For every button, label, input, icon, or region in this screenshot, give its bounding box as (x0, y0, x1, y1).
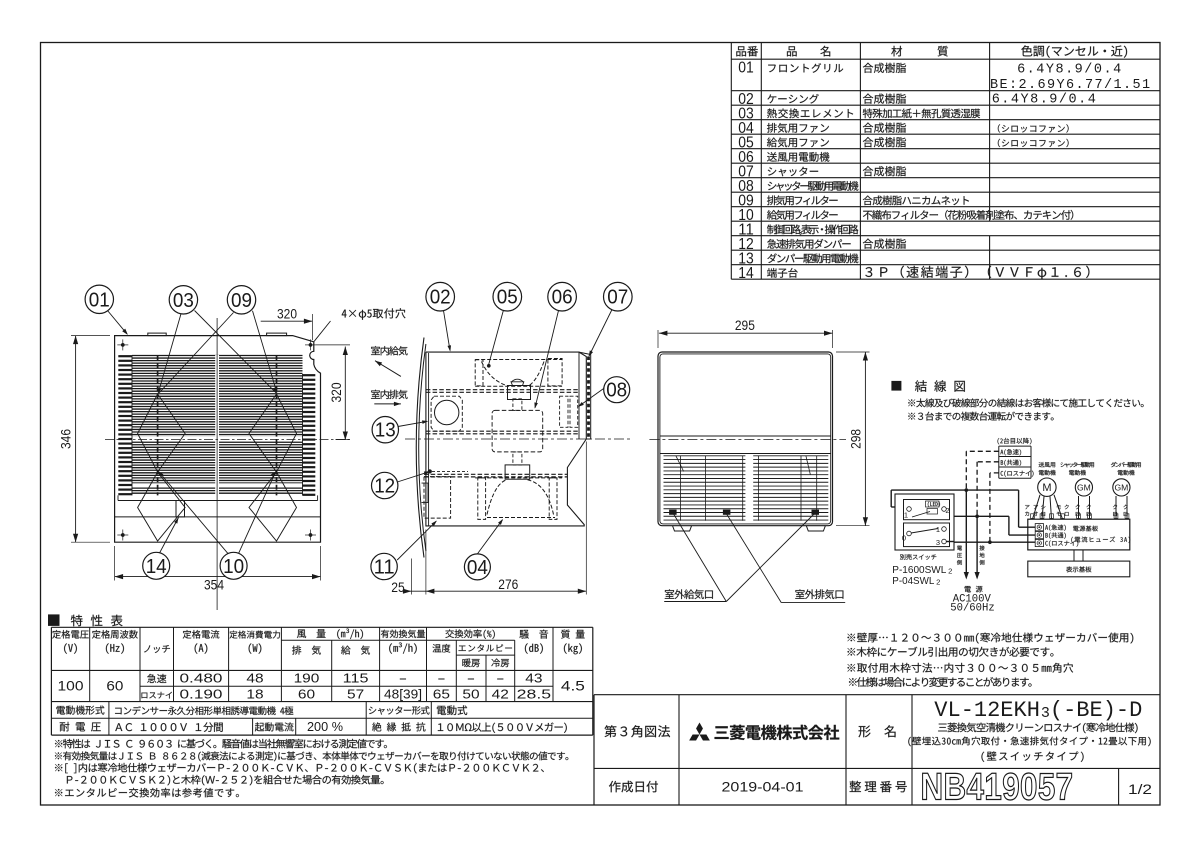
svg-text:GM: GM (1114, 482, 1128, 492)
svg-text:NB419057: NB419057 (921, 767, 1074, 809)
svg-text:115: 115 (343, 671, 369, 686)
svg-text:GM: GM (1077, 482, 1091, 492)
svg-text:100: 100 (58, 679, 84, 694)
svg-text:-: - (467, 671, 476, 686)
svg-text:18: 18 (246, 686, 263, 701)
svg-text:0: 0 (902, 534, 906, 543)
svg-text:298: 298 (848, 429, 863, 449)
svg-text:(-BE)-D: (-BE)-D (1050, 698, 1142, 723)
svg-text:190: 190 (294, 671, 320, 686)
svg-text:295: 295 (735, 318, 755, 333)
svg-text:10: 10 (223, 556, 244, 578)
svg-text:M: M (1042, 482, 1051, 494)
svg-text:0.190: 0.190 (180, 686, 223, 701)
svg-text:6.4Y8.9/0.4: 6.4Y8.9/0.4 (1017, 63, 1123, 78)
svg-text:06: 06 (552, 287, 573, 309)
svg-text:2019-04-01: 2019-04-01 (722, 779, 804, 794)
svg-text:13: 13 (375, 420, 396, 442)
svg-text:42: 42 (492, 686, 509, 701)
svg-text:346: 346 (59, 429, 74, 449)
svg-text:6.4Y8.9/0.4: 6.4Y8.9/0.4 (992, 93, 1098, 108)
svg-text:-: - (437, 671, 446, 686)
svg-text:07: 07 (607, 287, 628, 309)
svg-text:276: 276 (498, 577, 518, 592)
svg-text:P-04SWL: P-04SWL (892, 575, 934, 587)
svg-text:50/60Hz: 50/60Hz (950, 603, 995, 615)
svg-text:01: 01 (89, 289, 110, 311)
svg-text:50: 50 (462, 686, 479, 701)
svg-text:03: 03 (173, 290, 194, 312)
svg-text:2: 2 (948, 569, 953, 577)
svg-text:2: 2 (936, 580, 941, 588)
svg-text:04: 04 (467, 557, 488, 579)
svg-text:-: - (399, 671, 408, 686)
svg-text:4.5: 4.5 (561, 679, 585, 694)
svg-text:57: 57 (347, 686, 364, 701)
svg-text:BE:2.69Y6.77/1.51: BE:2.69Y6.77/1.51 (990, 78, 1152, 93)
svg-text:08: 08 (606, 380, 627, 402)
svg-text:60: 60 (106, 679, 123, 694)
svg-text:02: 02 (430, 287, 451, 309)
svg-text:0.480: 0.480 (180, 671, 223, 686)
svg-text:43: 43 (525, 671, 542, 686)
svg-text:25: 25 (391, 580, 405, 595)
svg-text:28.5: 28.5 (517, 686, 551, 701)
svg-text:320: 320 (277, 306, 297, 321)
svg-text:354: 354 (204, 578, 224, 593)
svg-text:01: 01 (738, 60, 754, 77)
svg-text:2: 2 (945, 506, 949, 515)
svg-text:200 %: 200 % (307, 719, 343, 734)
svg-text:48: 48 (246, 671, 263, 686)
svg-text:VL-12EKH: VL-12EKH (934, 698, 1040, 723)
svg-text:60: 60 (298, 686, 315, 701)
svg-text:48[39]: 48[39] (384, 687, 422, 701)
svg-text:09: 09 (231, 290, 252, 312)
svg-text:11: 11 (374, 557, 395, 579)
svg-text:1: 1 (904, 511, 908, 520)
svg-text:1/2: 1/2 (1128, 782, 1152, 797)
svg-text:14: 14 (738, 265, 754, 282)
svg-text:-: - (496, 671, 505, 686)
svg-text:3: 3 (1041, 705, 1050, 722)
svg-text:320: 320 (329, 383, 344, 403)
svg-text:12: 12 (374, 476, 395, 498)
svg-text:05: 05 (497, 287, 518, 309)
svg-text:3: 3 (936, 538, 940, 547)
svg-text:65: 65 (433, 686, 450, 701)
svg-text:1: 1 (936, 525, 940, 534)
svg-text:14: 14 (146, 556, 167, 578)
